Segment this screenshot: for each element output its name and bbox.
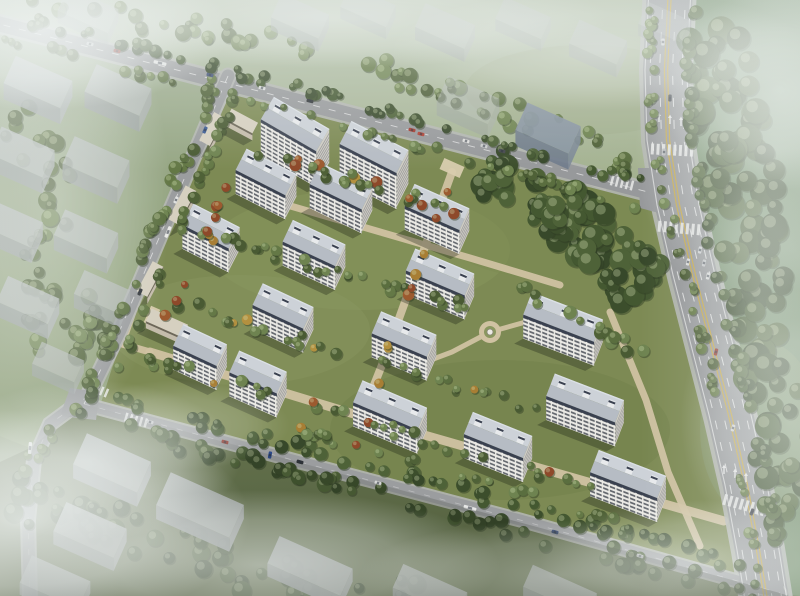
aerial-rendering-canvas (0, 0, 800, 596)
central-garden (487, 329, 493, 335)
residential-masterplan-render (0, 0, 800, 596)
garden-pavilion (487, 329, 493, 335)
